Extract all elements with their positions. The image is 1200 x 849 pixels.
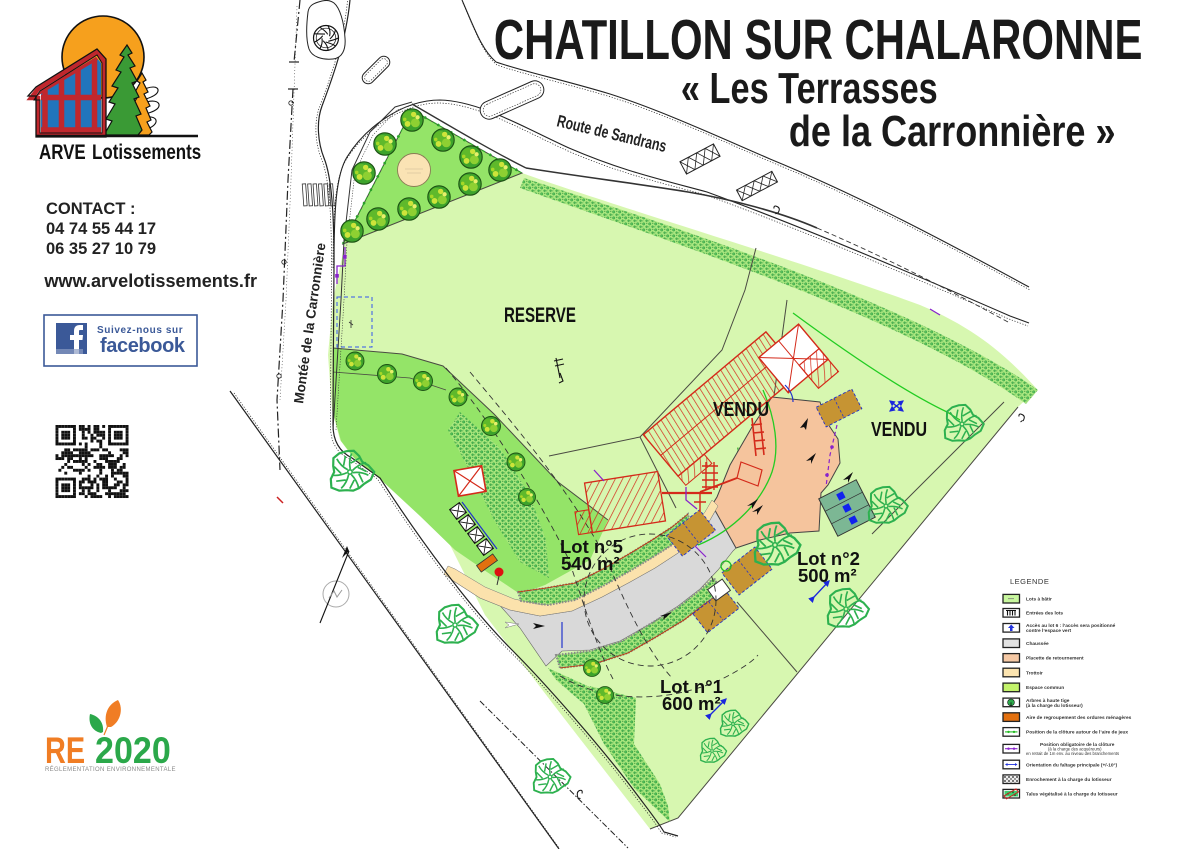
- svg-text:500 m²: 500 m²: [798, 565, 857, 586]
- svg-text:en retrait de 1m env. au nivea: en retrait de 1m env. au niveau des bran…: [1026, 751, 1119, 756]
- svg-text:CONTACT :: CONTACT :: [46, 200, 136, 218]
- svg-text:540 m²: 540 m²: [561, 553, 620, 574]
- svg-text:RE: RE: [45, 731, 85, 772]
- svg-text:ARVELotissements: ARVELotissements: [39, 141, 201, 164]
- svg-text:VENDU: VENDU: [871, 418, 927, 440]
- svg-text:Aire de regroupement des ordur: Aire de regroupement des ordures ménagèr…: [1026, 715, 1132, 721]
- svg-text:Placette de retournement: Placette de retournement: [1026, 656, 1084, 662]
- svg-text:Espace commun: Espace commun: [1026, 685, 1064, 691]
- svg-text:06 35 27 10 79: 06 35 27 10 79: [46, 240, 156, 258]
- svg-text:Lots à bâtir: Lots à bâtir: [1026, 597, 1052, 603]
- svg-text:Position de la clôture autour: Position de la clôture autour de l’aire …: [1026, 730, 1128, 736]
- svg-text:www.arvelotissements.fr: www.arvelotissements.fr: [43, 270, 257, 291]
- svg-text:facebook: facebook: [100, 335, 186, 357]
- svg-text:de la Carronnière »: de la Carronnière »: [789, 107, 1116, 156]
- svg-text:Orientation du faîtage princip: Orientation du faîtage principale (+/-10…: [1026, 762, 1117, 768]
- svg-text:RESERVE: RESERVE: [504, 302, 576, 326]
- svg-text:Entrées des lots: Entrées des lots: [1026, 611, 1063, 617]
- svg-text:RÉGLEMENTATION ENVIRONNEMENTAL: RÉGLEMENTATION ENVIRONNEMENTALE: [45, 766, 176, 773]
- svg-text:2020: 2020: [95, 730, 171, 772]
- svg-text:CHATILLON SUR CHALARONNE: CHATILLON SUR CHALARONNE: [494, 8, 1142, 72]
- svg-text:Chaussée: Chaussée: [1026, 641, 1049, 647]
- svg-text:Trottoir: Trottoir: [1026, 670, 1043, 676]
- svg-text:600 m²: 600 m²: [662, 693, 721, 714]
- svg-text:Enrochement à la charge du lot: Enrochement à la charge du lotisseur: [1026, 777, 1112, 783]
- svg-text:LEGENDE: LEGENDE: [1010, 577, 1049, 586]
- svg-text:04 74 55 44 17: 04 74 55 44 17: [46, 220, 156, 238]
- svg-text:Talus végétalisé à la charge d: Talus végétalisé à la charge du lotisseu…: [1026, 792, 1118, 798]
- svg-text:(à la charge du lotisseur): (à la charge du lotisseur): [1026, 703, 1083, 709]
- svg-text:VENDU: VENDU: [713, 398, 769, 420]
- svg-text:contre l’espace vert: contre l’espace vert: [1026, 628, 1071, 634]
